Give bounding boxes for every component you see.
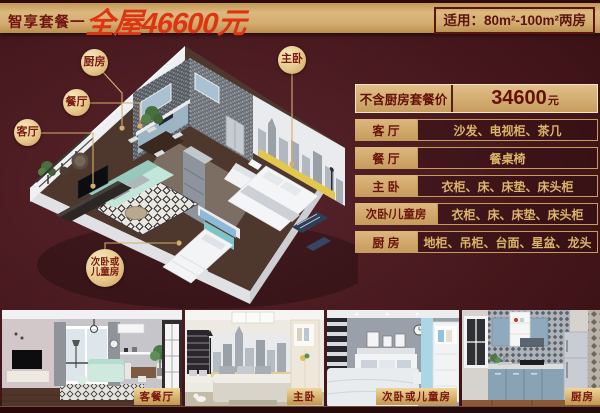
items-cell: 沙发、电视柜、茶几	[417, 119, 598, 141]
room-cell: 次卧/儿童房	[355, 203, 437, 225]
room-badge-kitchen: 厨房	[81, 49, 108, 76]
room-cell: 客 厅	[355, 119, 417, 141]
price-row-master: 主 卧 衣柜、床、床垫、床头柜	[355, 175, 598, 197]
items-cell: 衣柜、床、床垫、床头柜	[437, 203, 598, 225]
special-price-label: 不含厨房套餐价	[356, 85, 453, 112]
photo-master-bedroom: 主卧	[185, 310, 324, 407]
room-cell: 餐 厅	[355, 147, 417, 169]
photo-caption: 客餐厅	[134, 388, 181, 405]
special-price-number: 34600	[491, 87, 547, 110]
room-badge-living-label: 客厅	[17, 127, 39, 139]
photo-caption: 主卧	[287, 388, 322, 405]
special-price-unit: 元	[548, 92, 559, 108]
photo-caption: 厨房	[565, 388, 600, 405]
room-cell: 主 卧	[355, 175, 417, 197]
price-panel: 不含厨房套餐价 34600 元 客 厅 沙发、电视柜、茶几 餐 厅 餐桌椅 主 …	[355, 84, 598, 253]
photo-living-dining-room: 客餐厅	[2, 310, 182, 407]
photo-second-bedroom: 次卧或儿童房	[327, 310, 459, 407]
photo-gallery: 客餐厅	[0, 310, 600, 407]
room-badge-kitchen-label: 厨房	[84, 57, 106, 69]
bottom-bar	[0, 406, 600, 413]
items-cell: 餐桌椅	[417, 147, 598, 169]
package-name: 智享套餐一	[8, 11, 86, 32]
special-price-row: 不含厨房套餐价 34600 元	[355, 84, 598, 113]
room-badge-second-bedroom: 次卧或 儿童房	[86, 249, 124, 287]
floorplan: 厨房 餐厅 客厅 主卧 次卧或 儿童房	[0, 33, 358, 310]
room-badge-living: 客厅	[14, 119, 41, 146]
special-price-value: 34600 元	[453, 85, 597, 112]
applicable-range-box: 适用：80m²-100m²两房	[434, 7, 595, 34]
room-badge-second-label-line2: 儿童房	[91, 268, 120, 278]
poster-background: 智享套餐一 全屋46600元 适用：80m²-100m²两房	[0, 0, 600, 413]
photo-kitchen: 厨房	[462, 310, 600, 407]
room-badge-dining-label: 餐厅	[66, 97, 88, 109]
items-cell: 衣柜、床、床垫、床头柜	[417, 175, 598, 197]
room-badge-dining: 餐厅	[63, 89, 90, 116]
items-cell: 地柜、吊柜、台面、星盆、龙头	[417, 231, 598, 253]
price-row-dining: 餐 厅 餐桌椅	[355, 147, 598, 169]
price-row-living: 客 厅 沙发、电视柜、茶几	[355, 119, 598, 141]
room-badge-master-bedroom: 主卧	[278, 46, 306, 74]
photo-caption: 次卧或儿童房	[376, 388, 457, 405]
price-row-second-bedroom: 次卧/儿童房 衣柜、床、床垫、床头柜	[355, 203, 598, 225]
room-cell: 厨 房	[355, 231, 417, 253]
price-row-kitchen: 厨 房 地柜、吊柜、台面、星盆、龙头	[355, 231, 598, 253]
room-badge-master-label: 主卧	[281, 54, 303, 66]
floorplan-illustration	[0, 33, 358, 310]
applicable-range-text: 适用：80m²-100m²两房	[443, 13, 586, 28]
top-banner: 智享套餐一 全屋46600元 适用：80m²-100m²两房	[0, 0, 600, 33]
